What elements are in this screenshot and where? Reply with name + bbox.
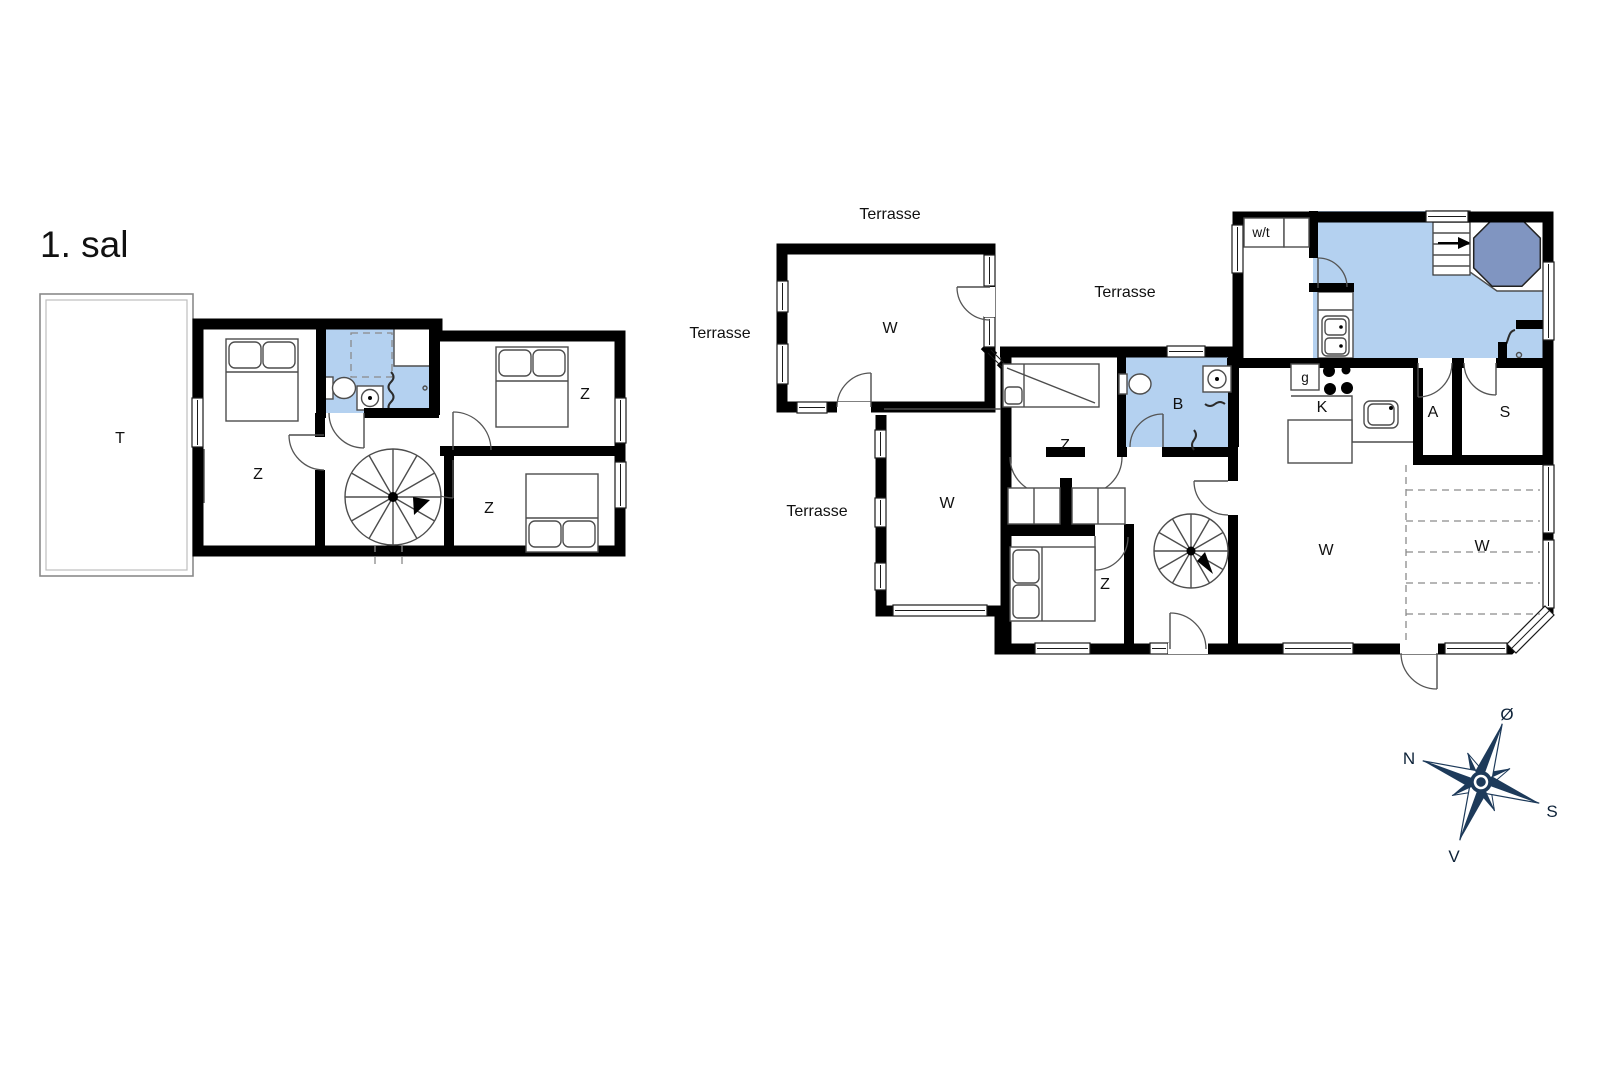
- compass-label-south: S: [1546, 802, 1557, 821]
- room-label-kitchen: K: [1317, 399, 1328, 416]
- bunk-bed: [1003, 364, 1099, 407]
- first-floor-plan: 1. sal: [40, 224, 626, 576]
- sink-icon: [357, 386, 383, 410]
- room-label-utility: w/t: [1251, 225, 1270, 240]
- floor-plan-image: 1. sal: [0, 0, 1600, 1067]
- ground-floor-plan: Terrasse Terrasse Terrasse Terrasse W W …: [689, 206, 1554, 689]
- compass-rose: N Ø S V: [1402, 703, 1561, 866]
- toilet-icon: [1119, 374, 1151, 394]
- terrace-label: Terrasse: [689, 325, 750, 342]
- compass-label-west: V: [1448, 847, 1460, 866]
- room-label-bedroom: Z: [1100, 576, 1110, 593]
- room-label-living: W: [882, 320, 898, 337]
- bed: [1010, 547, 1095, 621]
- kitchen-sink-icon: [1364, 401, 1398, 428]
- terrace-label: Terrasse: [786, 503, 847, 520]
- room-label-anteroom: A: [1428, 404, 1439, 421]
- sink-icon: [1203, 366, 1231, 392]
- label-stove: g: [1301, 370, 1309, 385]
- room-label-bedroom: Z: [253, 466, 263, 483]
- hot-tub-platform: [1470, 211, 1548, 291]
- room-label-bedroom: Z: [580, 386, 590, 403]
- room-label-bathroom: B: [1173, 396, 1184, 413]
- toilet-icon: [325, 377, 356, 399]
- kitchen-nook: [1318, 292, 1353, 358]
- room-label-bedroom: Z: [484, 500, 494, 517]
- room-label-dining: W: [1474, 538, 1490, 555]
- room-label-terrace: T: [115, 430, 125, 447]
- bed: [226, 339, 298, 421]
- floorplan-page: 1. sal: [0, 0, 1600, 1067]
- room-label-sauna: S: [1500, 404, 1511, 421]
- bed: [496, 347, 568, 427]
- hot-tub: [1474, 220, 1541, 287]
- kitchen-island: [1288, 420, 1352, 463]
- compass-label-north: N: [1403, 749, 1415, 768]
- bathroom-upper: [325, 329, 429, 413]
- compass-label-east: Ø: [1500, 705, 1513, 724]
- room-label-living: W: [939, 495, 955, 512]
- terrace-label: Terrasse: [1094, 284, 1155, 301]
- double-sink-icon: [1322, 316, 1349, 356]
- plan-title: 1. sal: [40, 224, 128, 265]
- bed: [526, 474, 598, 552]
- room-label-bedroom: Z: [1060, 437, 1070, 454]
- terrace-label: Terrasse: [859, 206, 920, 223]
- spiral-staircase: [1154, 514, 1228, 588]
- room-label-living: W: [1318, 542, 1334, 559]
